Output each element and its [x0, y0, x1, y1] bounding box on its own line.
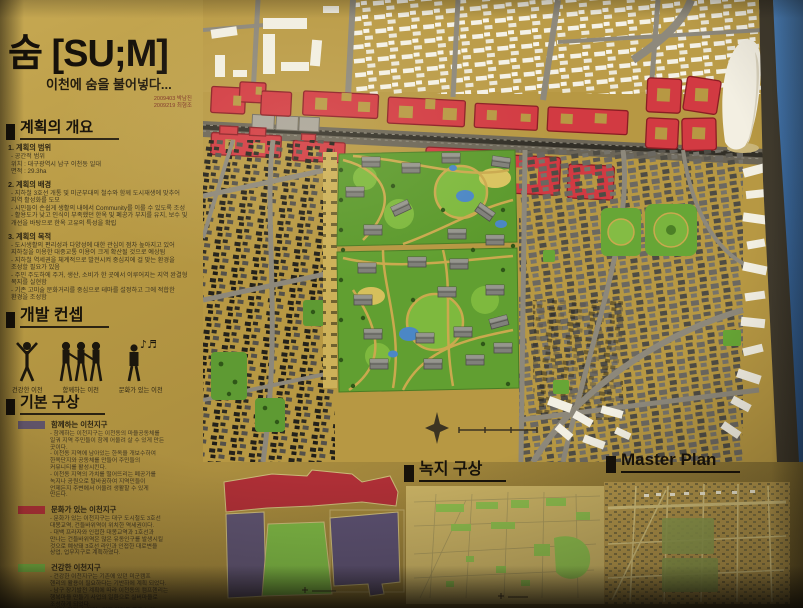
- concept-heading: 개발 컨셉: [20, 301, 109, 328]
- person-arms-raised-icon: [14, 340, 40, 382]
- overview-heading: 계획의 개요: [20, 116, 119, 140]
- zone-healthy: [262, 522, 332, 596]
- person-music-icon: ♪♬: [124, 336, 158, 382]
- overview-item-title: 2. 계획의 배경: [8, 180, 204, 190]
- district-color-swatch: [18, 564, 45, 572]
- zoning-diagram: [212, 462, 408, 602]
- overview-item: 1. 계획의 범위 - 공간적 범위 위치 : 대구광역시 남구 이천동 일대 …: [8, 143, 204, 176]
- district-healthy: 건강한 이천지구 - 건강한 이천지구는 기존에 있던 미군캠프 헨리의 활용이…: [6, 562, 204, 608]
- subtitle: 이천에 숨을 불어넣다...: [46, 74, 172, 93]
- east-urban-fabric: [519, 150, 759, 462]
- photo-of-presentation-board: 숨 [SU;M] 이천에 숨을 불어넣다... 2009403 박남진 2009…: [0, 0, 803, 608]
- section-plan-overview: 계획의 개요 1. 계획의 범위 - 공간적 범위 위치 : 대구광역시 남구 …: [6, 116, 204, 306]
- concept-culture: ♪♬ 문화가 있는 이천: [119, 336, 163, 394]
- green-plan-heading-row: 녹지 구상: [404, 455, 506, 482]
- overview-item-title: 3. 계획의 목적: [8, 232, 204, 242]
- master-plan-drawing: [604, 482, 790, 604]
- site-model-photo: [203, 0, 803, 462]
- concept-healthy: 건강한 이천: [12, 340, 43, 394]
- district-together: 함께하는 이천지구 - 함께하는 이천지구는 이천동의 마을공동체를 일궈 지역…: [6, 419, 204, 499]
- district-culture: 문화가 있는 이천지구 - 문화가 있는 이천지구는 대구 도시철도 3호선 대…: [6, 504, 204, 557]
- heading-square-marker: [606, 456, 616, 473]
- district-title: 함께하는 이천지구: [51, 419, 107, 430]
- heading-square-marker: [6, 312, 15, 328]
- district-title: 문화가 있는 이천지구: [51, 504, 116, 515]
- district-body: - 함께하는 이천지구는 이천동의 마을공동체를 일궈 지역 주민들이 함께 어…: [50, 431, 204, 499]
- overview-item-title: 1. 계획의 범위: [8, 143, 204, 153]
- district-color-swatch: [18, 421, 45, 429]
- zone-together-east: [330, 512, 400, 596]
- district-body: - 문화가 있는 이천지구는 대구 도시철도 3호선 대봉교역, 건들바위역이 …: [50, 516, 204, 557]
- concept-together: 함께하는 이천: [57, 340, 105, 394]
- master-plan-heading: Master Plan: [621, 450, 740, 473]
- section-development-concept: 개발 컨셉 건강한 이천: [6, 301, 204, 394]
- district-color-swatch: [18, 506, 45, 514]
- credits: 2009403 박남진 2009219 최형조: [6, 96, 192, 110]
- west-hanok-fabric: [203, 140, 335, 462]
- heading-square-marker: [6, 124, 15, 140]
- masterplan-park-upper: [662, 518, 714, 554]
- heading-square-marker: [404, 465, 414, 482]
- district-title: 건강한 이천지구: [51, 562, 101, 573]
- overview-item-body: - 공간적 범위 위치 : 대구광역시 남구 이천동 일대 면적 : 29.3h…: [11, 153, 204, 176]
- masterplan-park-lower: [662, 558, 718, 592]
- overview-item: 3. 계획의 목적 - 도시생활의 편리성과 다양성에 대한 관심이 점차 높아…: [8, 232, 204, 303]
- green-plan-map: [406, 486, 608, 604]
- overview-item-body: - 도시생활의 편리성과 다양성에 대한 관심이 점차 높아지고 있어 지하철을…: [11, 242, 204, 303]
- master-plan-heading-row: Master Plan: [606, 450, 740, 473]
- overview-item: 2. 계획의 배경 - 지하철 3호선 개통 및 미군부대의 철수와 함께 도시…: [8, 180, 204, 228]
- green-plan-heading: 녹지 구상: [419, 455, 506, 482]
- people-holding-hands-icon: [57, 340, 105, 382]
- overview-item-body: - 지하철 3호선 개통 및 미군부대의 철수와 함께 도시재생에 맞추어 지역…: [11, 190, 204, 228]
- district-body: - 건강한 이천지구는 기존에 있던 미군캠프 헨리의 활용이 필요하다는 기반…: [50, 574, 204, 608]
- svg-text:♪♬: ♪♬: [140, 338, 157, 351]
- text-panel: 숨 [SU;M] 이천에 숨을 불어넣다... 2009403 박남진 2009…: [6, 0, 204, 608]
- basic-plan-heading: 기본 구상: [20, 391, 105, 415]
- zone-together-west: [226, 512, 266, 598]
- zone-culture: [224, 470, 398, 512]
- central-park: [337, 150, 519, 392]
- page-title: 숨 [SU;M]: [8, 22, 168, 77]
- section-basic-plan: 기본 구상 함께하는 이천지구 - 함께하는 이천지구는 이천동의 마을공동체를…: [6, 391, 204, 608]
- heading-square-marker: [6, 399, 15, 415]
